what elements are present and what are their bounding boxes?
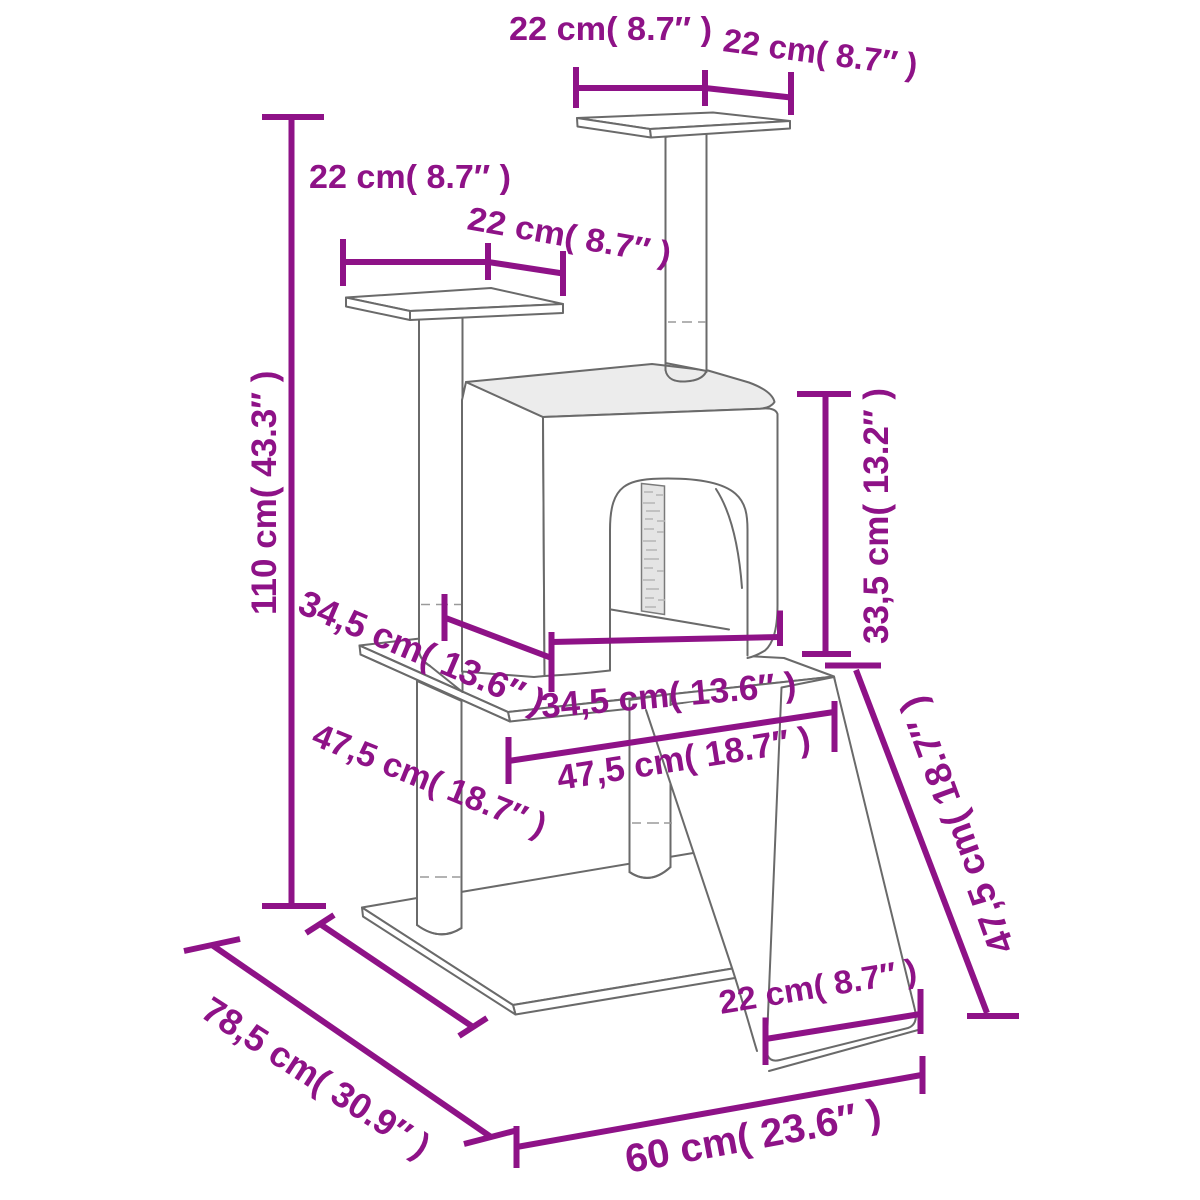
svg-text:22 cm( 8.7″ ): 22 cm( 8.7″ ): [509, 10, 712, 47]
svg-text:22 cm( 8.7″ ): 22 cm( 8.7″ ): [309, 158, 511, 195]
svg-text:110 cm( 43.3″ ): 110 cm( 43.3″ ): [245, 371, 284, 615]
svg-text:33,5 cm( 13.2″ ): 33,5 cm( 13.2″ ): [857, 388, 896, 644]
